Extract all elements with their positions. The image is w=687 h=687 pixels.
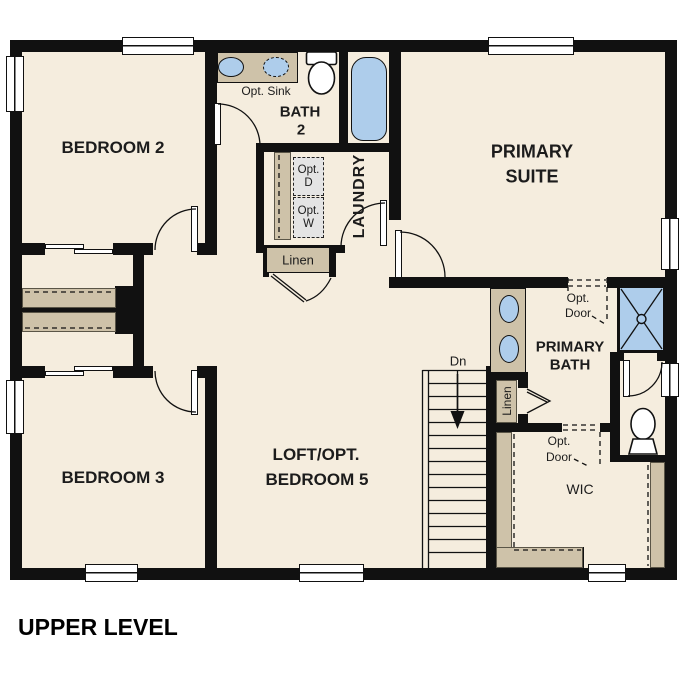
wall-laundry-west — [256, 152, 264, 245]
shower — [617, 285, 666, 353]
wall-toiletroom-north-b — [657, 352, 666, 361]
room-label-primary-suite-1: PRIMARY — [491, 142, 573, 163]
wall-bedroom2-east — [205, 52, 217, 255]
bath2-optional-sink — [263, 57, 289, 77]
room-label-primary-bath-1: PRIMARY — [536, 339, 605, 356]
window-loft-bottom — [299, 564, 364, 582]
wall-bedroom2-south-c — [197, 243, 205, 255]
room-label-primary-suite-2: SUITE — [505, 167, 558, 188]
room-label-bedroom3: BEDROOM 3 — [62, 468, 165, 488]
label-stairs-dn: Dn — [450, 354, 467, 369]
label-opt-door-upper-2: Door — [565, 306, 591, 320]
label-opt-door-lower-1: Opt. — [548, 434, 571, 448]
wall-linen-jamb-east — [329, 245, 336, 277]
optional-dryer-label-1: Opt. — [298, 164, 320, 177]
optional-washer-label-1: Opt. — [298, 205, 320, 218]
wall-bedroom2-south-a — [22, 243, 45, 255]
door-leaf-laundry — [380, 200, 387, 246]
bath2-sink — [218, 57, 244, 77]
label-opt-sink: Opt. Sink — [241, 84, 290, 98]
label-linen-bath: Linen — [500, 386, 514, 415]
wall-tub-nook-west — [339, 52, 348, 143]
room-label-bedroom2: BEDROOM 2 — [62, 138, 165, 158]
window-suite-top — [488, 37, 574, 55]
wic-shelf-west — [496, 432, 512, 550]
label-opt-door-upper-1: Opt. — [567, 291, 590, 305]
closet-shelf-bedroom2 — [22, 288, 116, 308]
exterior-wall-left — [10, 40, 22, 580]
wic-shelf-south — [496, 547, 583, 568]
window-bedroom2-left — [6, 56, 24, 112]
door-leaf-primary-suite — [395, 230, 402, 278]
wall-bedroom3-east — [205, 366, 217, 568]
primary-sink-2 — [499, 335, 519, 363]
primary-sink-1 — [499, 295, 519, 323]
room-label-wic: WIC — [566, 481, 593, 497]
wall-bath-linen-stub1 — [518, 376, 528, 388]
door-leaf-bath2 — [214, 103, 221, 145]
wall-bedroom3-north-a — [22, 366, 45, 378]
wall-closet-block — [115, 286, 144, 334]
label-opt-door-lower-2: Door — [546, 450, 572, 464]
room-label-primary-bath-2: BATH — [550, 357, 591, 374]
window-toiletroom-right — [661, 363, 679, 397]
slider-bedroom2-closet-b — [74, 249, 113, 254]
wic-shelf-east — [650, 462, 665, 568]
laundry-shelf — [274, 152, 291, 240]
optional-dryer-label-2: D — [304, 177, 312, 190]
label-linen-hall: Linen — [282, 253, 314, 268]
door-leaf-bedroom3 — [191, 370, 198, 415]
wall-suite-west-stub — [389, 277, 401, 288]
optional-washer: Opt. W — [293, 197, 324, 238]
room-label-loft-2: BEDROOM 5 — [266, 470, 369, 490]
wall-bedroom3-north-b — [113, 366, 153, 378]
room-label-loft-1: LOFT/OPT. — [273, 445, 360, 465]
bathtub — [351, 57, 387, 141]
room-label-bath2-2: 2 — [297, 122, 305, 139]
floor-plan: Opt. D Opt. W — [0, 0, 687, 687]
optional-dryer: Opt. D — [293, 157, 324, 196]
window-bedroom2-top — [122, 37, 194, 55]
plan-title: UPPER LEVEL — [18, 614, 178, 641]
window-suite-right — [661, 218, 679, 270]
window-bedroom3-bottom — [85, 564, 138, 582]
wall-wic-north-a — [486, 423, 562, 432]
exterior-wall-top — [10, 40, 677, 52]
wall-bath2-south — [256, 143, 401, 152]
door-leaf-toiletroom — [623, 360, 630, 397]
closet-shelf-bedroom3 — [22, 312, 116, 332]
room-label-bath2-1: BATH — [280, 104, 321, 121]
slider-bedroom3-closet-b — [45, 371, 84, 376]
room-label-laundry: LAUNDRY — [351, 154, 369, 239]
door-leaf-bedroom2 — [191, 206, 198, 252]
wall-toiletroom-west — [610, 352, 620, 455]
window-wic-bottom — [588, 564, 626, 582]
optional-washer-label-2: W — [303, 218, 314, 231]
wall-stairs-east — [486, 366, 496, 568]
wall-suite-west — [389, 52, 401, 220]
window-bedroom3-left — [6, 380, 24, 434]
wall-bedroom3-north-c — [197, 366, 205, 378]
wall-toiletroom-south — [610, 455, 677, 462]
exterior-wall-right — [665, 40, 677, 580]
wall-bedroom2-south-b — [113, 243, 153, 255]
wall-suite-south-a — [401, 277, 568, 288]
